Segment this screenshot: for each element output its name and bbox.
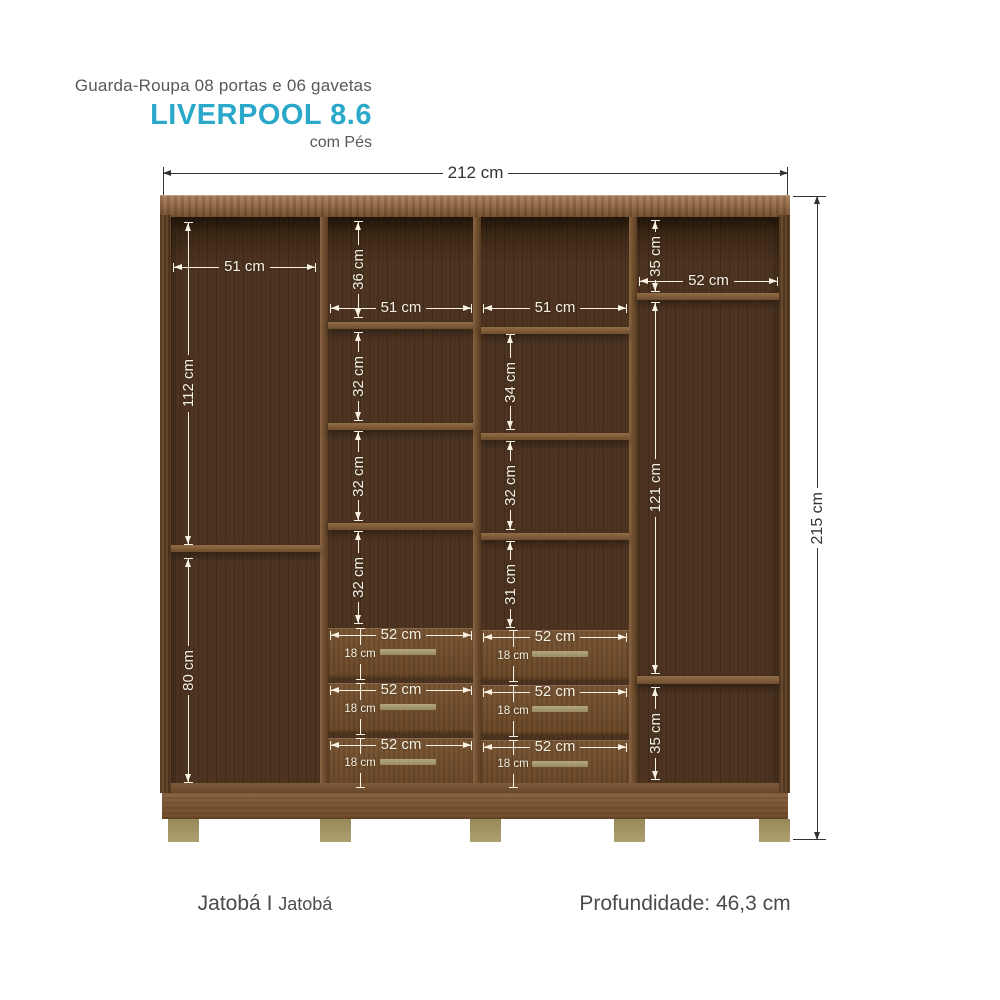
dim-label: 52 cm [535,630,576,644]
dim-right-width: 52 cm [639,274,778,288]
vertical-divider [629,217,637,783]
shelf-mid-left-top [328,322,473,329]
dim-label: 36 cm [351,249,366,290]
dim-overall-width: 212 cm [163,166,788,180]
dim-label: 52 cm [381,683,422,697]
product-title: LIVERPOOL 8.6 [60,99,372,132]
dim-mid-right-shelf3: 31 cm [500,541,520,628]
dim-label: 18 cm [497,757,528,772]
drawer-handle [380,649,436,655]
dim-label: 52 cm [381,628,422,642]
finish-name: Jatobá I Jatobá [140,892,390,916]
dim-label: 32 cm [351,356,366,397]
dim-drawer-height: 18 cm [489,740,537,788]
foot [320,819,351,842]
shelf-mid-left-2 [328,523,473,530]
dim-overall-height: 215 cm [807,196,827,840]
shelf-right-top [637,293,779,300]
dim-label: 52 cm [535,740,576,754]
shelf-mid-right-top [481,327,629,334]
dim-label: 51 cm [535,301,576,315]
dim-drawer-height: 18 cm [489,630,537,682]
drawer-handle [532,761,588,767]
drawer-handle [380,704,436,710]
dim-mid-left-width: 51 cm [330,301,472,315]
shelf-mid-right-2 [481,533,629,540]
bottom-board [171,783,779,793]
product-variant: com Pés [60,134,372,152]
foot [168,819,199,842]
drawer-handle [532,651,588,657]
dim-mid-right-shelf2: 32 cm [500,441,520,530]
right-side-panel [779,215,790,793]
dim-label: 32 cm [351,456,366,497]
dim-label: 51 cm [224,260,265,274]
foot [470,819,501,842]
vertical-divider [473,217,481,783]
shelf-left-column [171,545,320,552]
dim-mid-right-width: 51 cm [483,301,627,315]
dim-drawer-height: 18 cm [336,628,384,680]
depth-label: Profundidade: 46,3 cm [545,892,825,916]
foot [759,819,790,842]
shelf-mid-right-1 [481,433,629,440]
dim-label: 52 cm [535,685,576,699]
foot [614,819,645,842]
dim-label: 80 cm [181,650,196,691]
dim-label: 18 cm [497,704,528,719]
dim-extension-line [793,196,826,197]
dim-right-middle-height: 121 cm [645,302,665,674]
dim-label: 32 cm [351,557,366,598]
drawer-handle [532,706,588,712]
dim-drawer-height: 18 cm [489,685,537,737]
dim-label: 18 cm [344,702,375,717]
plinth [162,793,788,819]
top-board [160,195,790,217]
product-subtitle: Guarda-Roupa 08 portas e 06 gavetas [60,76,372,96]
dim-drawer-height: 18 cm [336,683,384,735]
dim-label: 51 cm [381,301,422,315]
dim-label: 52 cm [381,738,422,752]
dim-col-left-lower-height: 80 cm [178,558,198,783]
dim-label: 31 cm [503,564,518,605]
finish-separator: I [267,892,273,915]
dim-label: 18 cm [344,647,375,662]
finish-secondary: Jatobá [278,894,332,914]
dim-mid-left-shelf2: 32 cm [348,431,368,521]
dim-col-left-upper-height: 112 cm [178,222,198,545]
header: Guarda-Roupa 08 portas e 06 gavetas LIVE… [60,76,372,152]
dim-mid-right-shelf1: 34 cm [500,334,520,430]
dim-label: 34 cm [503,362,518,403]
dim-label-overall-height: 215 cm [810,492,825,544]
finish-primary: Jatobá [198,892,261,915]
dim-label: 121 cm [648,463,663,512]
shelf-right-bottom [637,676,779,684]
dim-extension-line [793,839,826,840]
vertical-divider [320,217,328,783]
dim-mid-left-shelf3: 32 cm [348,531,368,624]
wardrobe-dimension-diagram: Guarda-Roupa 08 portas e 06 gavetas LIVE… [0,0,1000,1000]
drawer-handle [380,759,436,765]
dim-right-bottom-height: 35 cm [645,687,665,780]
dim-label: 18 cm [497,649,528,664]
dim-label: 18 cm [344,756,375,771]
dim-label: 35 cm [648,713,663,754]
dim-label: 52 cm [688,274,729,288]
dim-mid-left-shelf1: 32 cm [348,332,368,421]
shelf-mid-left-1 [328,423,473,430]
dim-label: 112 cm [181,359,196,407]
dim-drawer-height: 18 cm [336,738,384,788]
dim-label: 32 cm [503,465,518,506]
dim-label: 35 cm [648,236,663,277]
dim-label-overall-width: 212 cm [448,166,504,180]
left-side-panel [160,215,171,793]
